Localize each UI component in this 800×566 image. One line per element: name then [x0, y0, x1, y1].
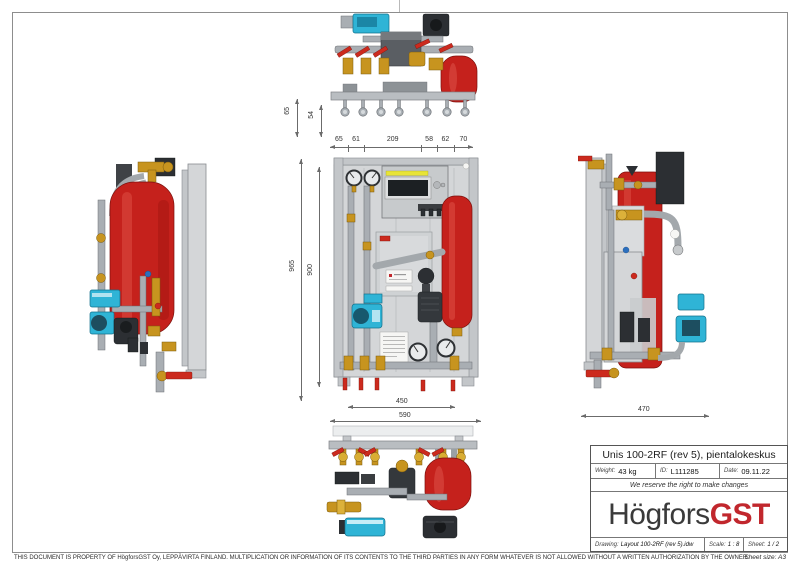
- dimension-top-5: 62: [437, 136, 454, 143]
- id-value: L111285: [671, 467, 699, 476]
- weight-cell: Weight: 43 kg: [591, 464, 655, 478]
- dimension-line-top-row: [330, 147, 473, 148]
- controller-unit: [382, 166, 448, 218]
- hanging-gauges-top: [341, 100, 469, 116]
- dimension-line-side-depth: [581, 416, 709, 417]
- sheet-value: 1 / 2: [767, 542, 779, 548]
- date-cell: Date: 09.11.22: [719, 464, 787, 478]
- dimension-front-width-outer: 590: [399, 412, 411, 420]
- actuator-cyan: [341, 14, 389, 33]
- frame-edge-right-view: [584, 158, 607, 370]
- dimension-top-4: 58: [421, 136, 437, 143]
- title-block-meta-row: Weight: 43 kg ID: L111285 Date: 09.11.22: [591, 464, 787, 479]
- logo-text-red: GST: [710, 498, 770, 532]
- right-side-view: [578, 148, 710, 400]
- dimension-line-front-height-inner: [319, 167, 320, 387]
- id-label: ID:: [660, 468, 668, 474]
- rights-notice: We reserve the right to make changes: [591, 479, 787, 492]
- rail-bottom-view: [329, 426, 477, 459]
- left-side-view: [82, 156, 218, 404]
- scale-value: 1 : 8: [728, 542, 740, 548]
- dimension-top-1: 65: [330, 136, 348, 143]
- pump-top: [423, 14, 449, 36]
- sheet-label: Sheet:: [748, 542, 765, 548]
- id-cell: ID: L111285: [655, 464, 719, 478]
- drawing-sheet: 65 54 65 61 209 58 62 70 965 900 450 590…: [0, 0, 800, 566]
- scale-label: Scale:: [709, 542, 726, 548]
- frame-edge-left-view: [182, 164, 206, 378]
- title-block-bottom-row: Drawing: Layout 100-2RF (rev 5).idw Scal…: [591, 537, 787, 551]
- sheet-cell: Sheet: 1 / 2: [743, 538, 787, 551]
- dimension-top-3: 209: [364, 136, 421, 143]
- drawing-file-cell: Drawing: Layout 100-2RF (rev 5).idw: [591, 538, 704, 551]
- bottom-view: [323, 424, 483, 544]
- dimension-line-front-width-inner: [348, 407, 455, 408]
- date-value: 09.11.22: [741, 467, 770, 476]
- dimension-line-front-width-outer: [330, 421, 481, 422]
- dimension-top-6: 70: [454, 136, 473, 143]
- dimension-front-height-inner: 900: [307, 264, 315, 276]
- dimension-row-top: 65 61 209 58 62 70: [330, 136, 473, 143]
- scale-cell: Scale: 1 : 8: [704, 538, 743, 551]
- front-view: [330, 154, 482, 402]
- dimension-line-top-drop-inner: [321, 105, 322, 137]
- sheet-size-note: Sheet size: A3: [744, 554, 786, 561]
- dimension-top-2: 61: [348, 136, 365, 143]
- drawing-label: Drawing:: [595, 542, 619, 548]
- drawing-value: Layout 100-2RF (rev 5).idw: [621, 542, 694, 548]
- logo-text-black: Högfors: [608, 498, 710, 532]
- title-block: Unis 100-2RF (rev 5), pientalokeskus Wei…: [590, 445, 788, 552]
- expansion-vessel-bottom-view: [425, 458, 471, 510]
- dimension-top-drop-outer: 65: [284, 107, 292, 115]
- date-label: Date:: [724, 468, 738, 474]
- dimension-front-width-inner: 450: [396, 398, 408, 406]
- dimension-side-depth: 470: [638, 406, 650, 414]
- top-view: [323, 6, 483, 118]
- weight-value: 43 kg: [618, 467, 636, 476]
- drawing-title: Unis 100-2RF (rev 5), pientalokeskus: [591, 446, 787, 464]
- dimension-front-height-outer: 965: [289, 260, 297, 272]
- ownership-disclaimer: THIS DOCUMENT IS PROPERTY OF HögforsGST …: [14, 555, 749, 561]
- dimension-line-front-height-outer: [301, 159, 302, 401]
- dimension-line-top-drop-outer: [297, 99, 298, 137]
- company-logo: HögforsGST: [591, 492, 787, 537]
- dimension-top-drop-inner: 54: [308, 111, 316, 119]
- weight-label: Weight:: [595, 468, 615, 474]
